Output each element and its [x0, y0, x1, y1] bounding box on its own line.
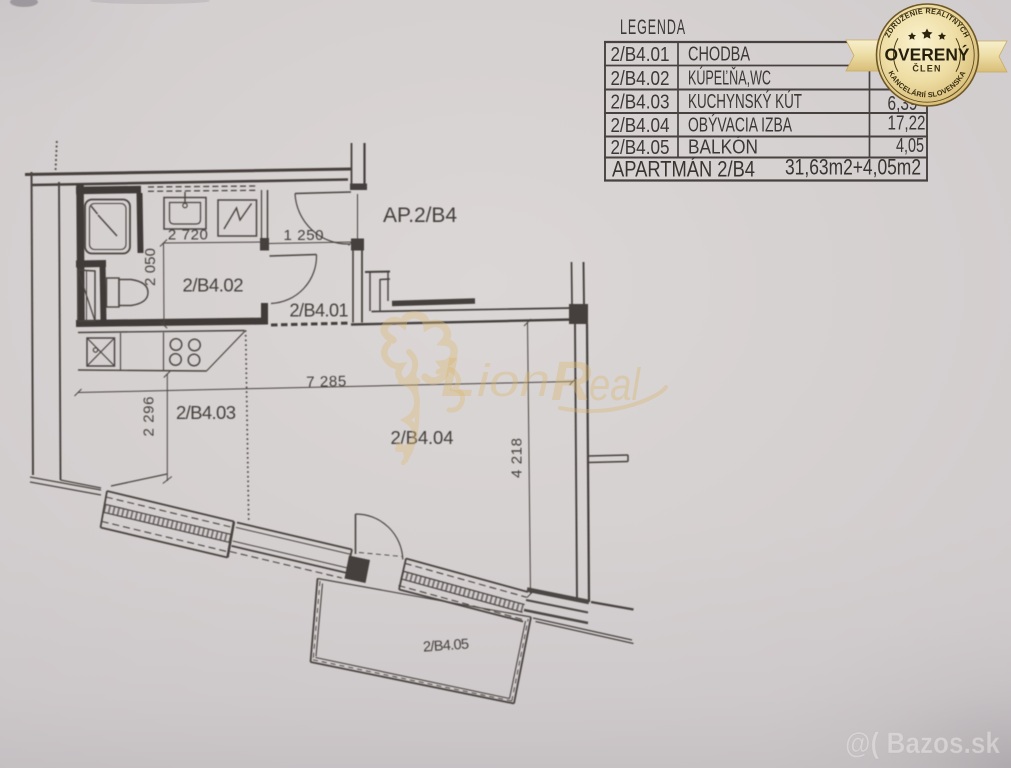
svg-text:OBÝVACIA IZBA: OBÝVACIA IZBA	[688, 114, 792, 137]
svg-text:@( Bazos.sk: @( Bazos.sk	[845, 727, 1000, 760]
svg-text:1 250: 1 250	[284, 227, 324, 244]
svg-text:2 720: 2 720	[168, 227, 208, 244]
svg-text:APARTMÁN 2/B4: APARTMÁN 2/B4	[612, 157, 755, 182]
svg-text:ion: ion	[477, 355, 550, 406]
svg-text:ČLEN: ČLEN	[912, 63, 941, 74]
svg-text:7 285: 7 285	[306, 373, 346, 391]
svg-text:2/B4.03: 2/B4.03	[176, 402, 236, 423]
svg-text:2 296: 2 296	[141, 397, 158, 437]
svg-text:OVERENÝ: OVERENÝ	[885, 44, 970, 65]
svg-text:2/B4.02: 2/B4.02	[611, 68, 670, 90]
svg-text:2/B4.01: 2/B4.01	[290, 301, 349, 321]
svg-text:BALKÓN: BALKÓN	[688, 136, 758, 159]
svg-text:2/B4.02: 2/B4.02	[183, 275, 244, 296]
svg-text:R: R	[551, 349, 592, 412]
svg-text:2/B4.01: 2/B4.01	[611, 44, 670, 66]
svg-text:LEGENDA: LEGENDA	[620, 16, 686, 39]
svg-text:17,22: 17,22	[888, 113, 926, 135]
svg-text:4 218: 4 218	[509, 438, 526, 478]
svg-text:CHODBA: CHODBA	[688, 44, 750, 66]
svg-text:2 050: 2 050	[142, 248, 159, 286]
svg-text:eal: eal	[589, 359, 642, 410]
svg-text:KUCHYNSKÝ KÚT: KUCHYNSKÝ KÚT	[688, 90, 802, 113]
svg-text:AP.2/B4: AP.2/B4	[383, 204, 457, 227]
svg-text:2/B4.03: 2/B4.03	[611, 92, 670, 114]
svg-text:31,63m2+4,05m2: 31,63m2+4,05m2	[785, 155, 921, 180]
svg-text:2/B4.05: 2/B4.05	[423, 636, 470, 655]
svg-text:KÚPEĽŇA,WC: KÚPEĽŇA,WC	[688, 67, 771, 90]
svg-text:2/B4.04: 2/B4.04	[611, 115, 670, 137]
svg-text:L: L	[441, 345, 475, 408]
